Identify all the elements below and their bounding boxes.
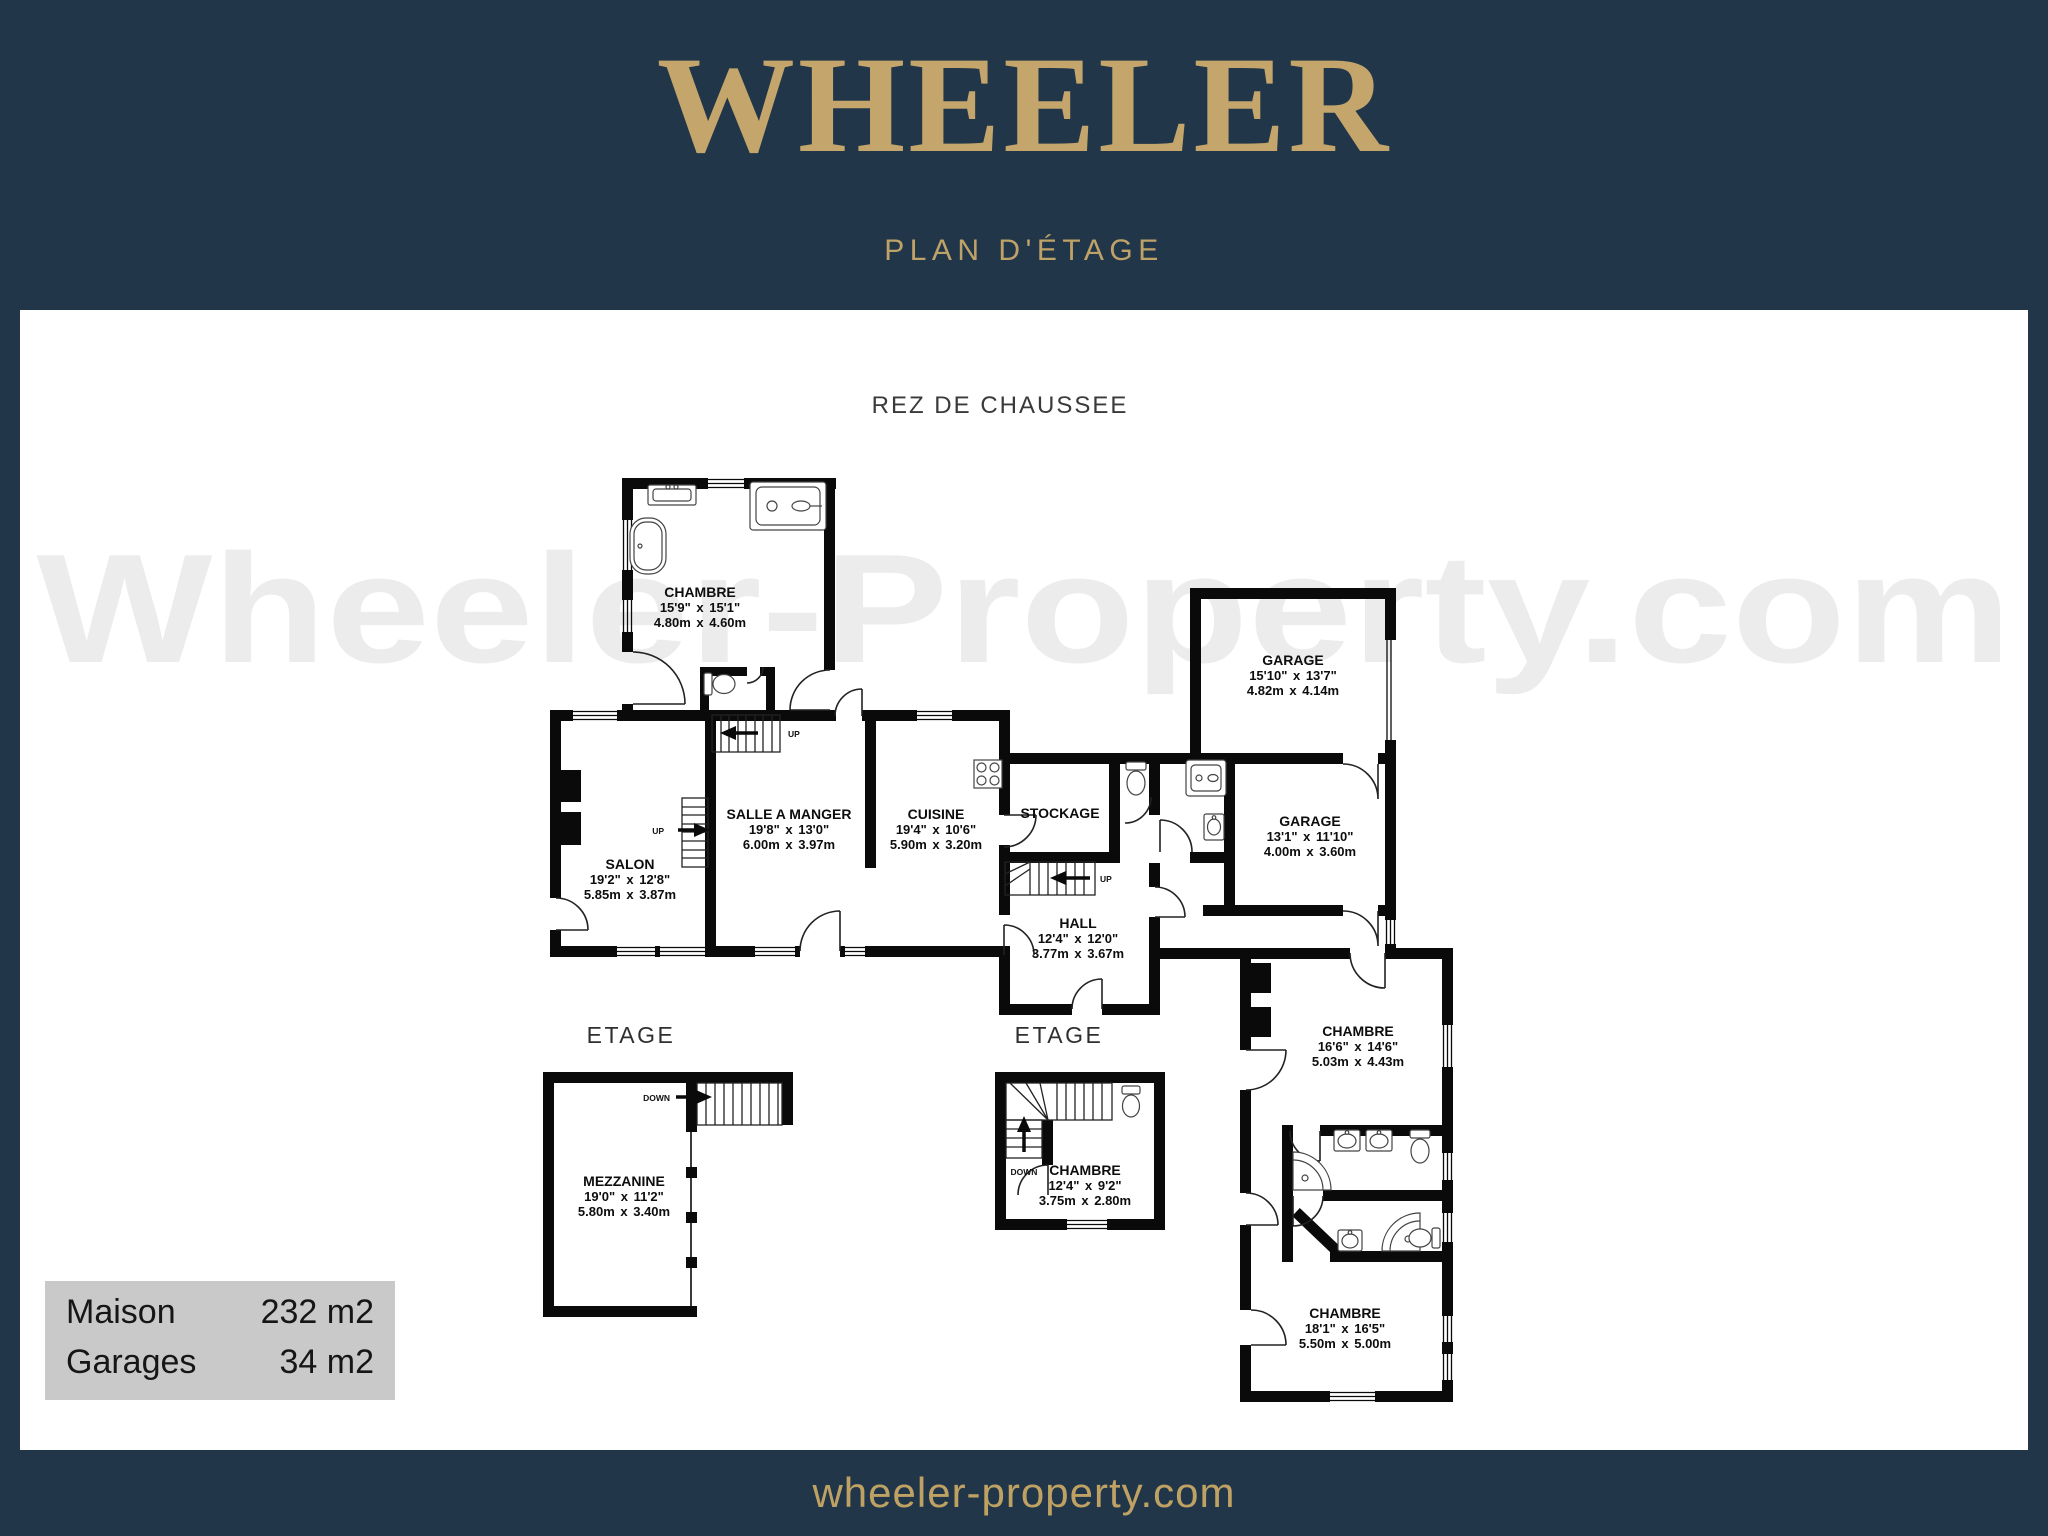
stair-up-label: UP: [652, 826, 664, 836]
svg-text:12'4" x 9'2": 12'4" x 9'2": [1048, 1178, 1121, 1193]
svg-text:19'4" x 10'6": 19'4" x 10'6": [896, 822, 976, 837]
stairs-etage-icon: [1006, 1083, 1112, 1158]
room-chambre-bottom-right: CHAMBRE 18'1" x 16'5" 5.50m x 5.00m: [1299, 1305, 1391, 1351]
watermark-text: Wheeler-Property.com: [37, 522, 2012, 695]
summary-row-value: 232 m2: [261, 1293, 374, 1331]
vanity-sink-icon: [648, 485, 696, 505]
stair-down-label: DOWN: [1011, 1167, 1038, 1177]
svg-text:3.77m x 3.67m: 3.77m x 3.67m: [1032, 946, 1124, 961]
svg-text:4.82m x 4.14m: 4.82m x 4.14m: [1247, 683, 1339, 698]
toilet-icon: [704, 673, 735, 695]
stairs-mezzanine-icon: [697, 1083, 782, 1125]
toilet-icon: [1126, 762, 1146, 795]
svg-text:19'2" x 12'8": 19'2" x 12'8": [590, 872, 670, 887]
svg-text:CHAMBRE: CHAMBRE: [1049, 1162, 1121, 1178]
room-salle-a-manger: SALLE A MANGER 19'8" x 13'0" 6.00m x 3.9…: [727, 806, 852, 852]
toilet-icon: [1409, 1228, 1440, 1248]
svg-text:12'4" x 12'0": 12'4" x 12'0": [1038, 931, 1118, 946]
stair-up-label: UP: [788, 729, 800, 739]
svg-text:SALON: SALON: [606, 856, 655, 872]
svg-text:GARAGE: GARAGE: [1279, 813, 1340, 829]
shower-icon: [750, 482, 826, 530]
bathtub-icon: [630, 518, 666, 574]
website-url: wheeler-property.com: [812, 1469, 1235, 1517]
summary-row-label: Garages: [66, 1343, 196, 1381]
svg-text:6.00m x 3.97m: 6.00m x 3.97m: [743, 837, 835, 852]
svg-text:5.85m x 3.87m: 5.85m x 3.87m: [584, 887, 676, 902]
brand-logo-text: WHEELER: [0, 36, 2048, 174]
sink-icon: [1334, 1130, 1360, 1151]
svg-text:19'8" x 13'0": 19'8" x 13'0": [749, 822, 829, 837]
stair-up-label: UP: [1100, 874, 1112, 884]
room-chambre-right: CHAMBRE 16'6" x 14'6" 5.03m x 4.43m: [1312, 1023, 1404, 1069]
shower-icon: [1186, 760, 1226, 796]
svg-text:19'0" x 11'2": 19'0" x 11'2": [584, 1189, 664, 1204]
svg-text:5.50m x 5.00m: 5.50m x 5.00m: [1299, 1336, 1391, 1351]
stove-icon: [974, 760, 1002, 788]
toilet-icon: [1122, 1086, 1140, 1117]
svg-text:CUISINE: CUISINE: [908, 806, 965, 822]
svg-text:4.80m x 4.60m: 4.80m x 4.60m: [654, 615, 746, 630]
svg-text:CHAMBRE: CHAMBRE: [664, 584, 736, 600]
svg-text:4.00m x 3.60m: 4.00m x 3.60m: [1264, 844, 1356, 859]
room-salon: SALON 19'2" x 12'8" 5.85m x 3.87m: [584, 856, 676, 902]
svg-text:5.03m x 4.43m: 5.03m x 4.43m: [1312, 1054, 1404, 1069]
diagonal-wall: [1296, 1212, 1338, 1252]
summary-row-label: Maison: [66, 1293, 176, 1331]
ground-floor-label: REZ DE CHAUSSEE: [872, 392, 1129, 419]
corner-shower-icon: [1293, 1152, 1331, 1190]
stair-arrows: [676, 726, 1090, 1152]
svg-text:STOCKAGE: STOCKAGE: [1020, 805, 1099, 821]
sink-icon: [1366, 1130, 1392, 1151]
toilet-icon: [1410, 1130, 1430, 1163]
page-subtitle: PLAN D'ÉTAGE: [0, 234, 2048, 268]
upper-floor-label-left: ETAGE: [587, 1022, 676, 1048]
summary-row-value: 34 m2: [280, 1343, 375, 1381]
svg-text:15'10" x 13'7": 15'10" x 13'7": [1249, 668, 1337, 683]
room-stockage: STOCKAGE: [1020, 805, 1099, 821]
room-mezzanine: MEZZANINE 19'0" x 11'2" 5.80m x 3.40m: [578, 1173, 670, 1219]
sink-icon: [1338, 1230, 1362, 1251]
page-header: WHEELER PLAN D'ÉTAGE: [0, 0, 2048, 310]
area-summary-box: Maison 232 m2 Garages 34 m2: [45, 1281, 395, 1400]
sink-icon: [1204, 814, 1224, 840]
svg-text:15'9" x 15'1": 15'9" x 15'1": [660, 600, 740, 615]
room-garage-right: GARAGE 13'1" x 11'10" 4.00m x 3.60m: [1264, 813, 1356, 859]
room-chambre-etage: CHAMBRE 12'4" x 9'2" 3.75m x 2.80m: [1039, 1162, 1131, 1208]
upper-floor-label-mid: ETAGE: [1015, 1022, 1104, 1048]
floorplan-canvas: Wheeler-Property.com REZ DE CHAUSSEE ETA…: [20, 310, 2028, 1450]
svg-text:16'6" x 14'6": 16'6" x 14'6": [1318, 1039, 1398, 1054]
svg-text:GARAGE: GARAGE: [1262, 652, 1323, 668]
room-hall: HALL 12'4" x 12'0" 3.77m x 3.67m: [1032, 915, 1124, 961]
floorplan-panel: Wheeler-Property.com REZ DE CHAUSSEE ETA…: [20, 310, 2028, 1450]
svg-text:3.75m x 2.80m: 3.75m x 2.80m: [1039, 1193, 1131, 1208]
svg-text:MEZZANINE: MEZZANINE: [583, 1173, 665, 1189]
room-cuisine: CUISINE 19'4" x 10'6" 5.90m x 3.20m: [890, 806, 982, 852]
page-footer: wheeler-property.com: [0, 1450, 2048, 1536]
svg-text:CHAMBRE: CHAMBRE: [1322, 1023, 1394, 1039]
svg-text:13'1" x 11'10": 13'1" x 11'10": [1267, 829, 1354, 844]
svg-text:CHAMBRE: CHAMBRE: [1309, 1305, 1381, 1321]
svg-text:5.80m x 3.40m: 5.80m x 3.40m: [578, 1204, 670, 1219]
svg-text:HALL: HALL: [1059, 915, 1097, 931]
room-chambre-tl: CHAMBRE 15'9" x 15'1" 4.80m x 4.60m: [654, 584, 746, 630]
svg-text:SALLE A MANGER: SALLE A MANGER: [727, 806, 852, 822]
svg-text:18'1" x 16'5": 18'1" x 16'5": [1305, 1321, 1385, 1336]
svg-text:5.90m x 3.20m: 5.90m x 3.20m: [890, 837, 982, 852]
stair-down-label: DOWN: [643, 1093, 670, 1103]
